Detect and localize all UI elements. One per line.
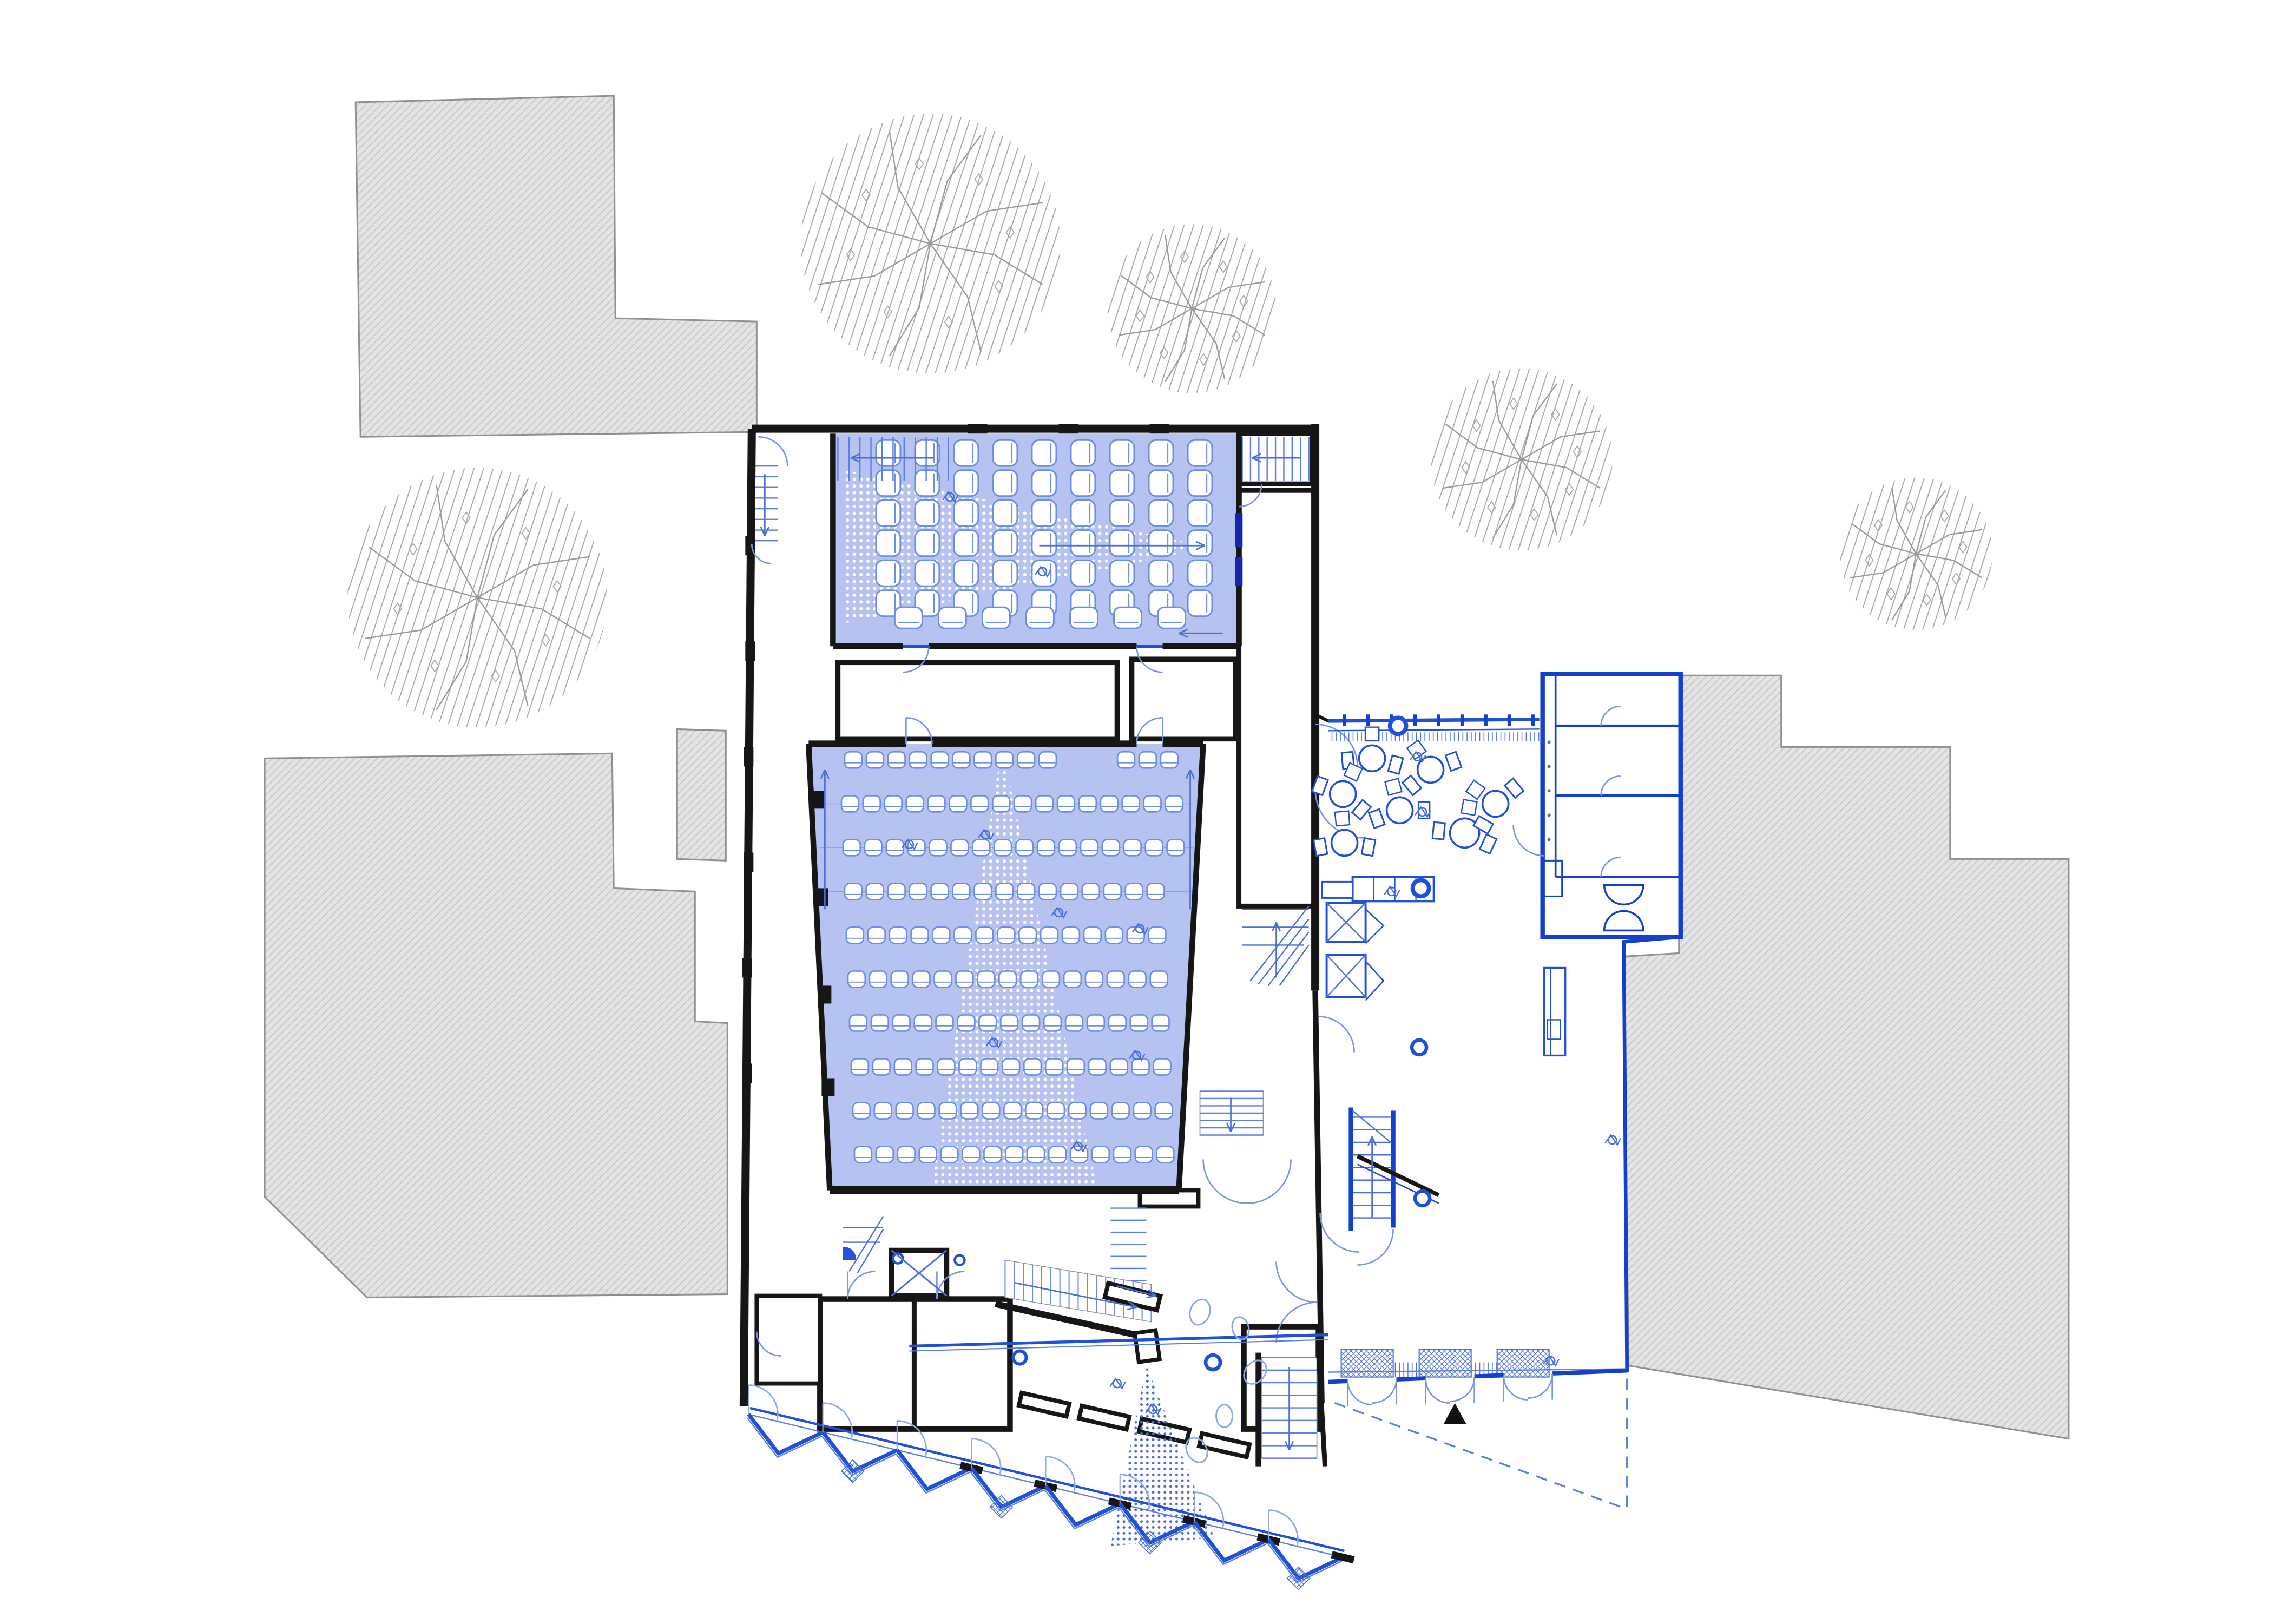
cafe-annex xyxy=(1312,674,1681,1406)
floor-plan-page xyxy=(0,0,2296,1624)
floor-plan-svg xyxy=(0,0,2296,1624)
